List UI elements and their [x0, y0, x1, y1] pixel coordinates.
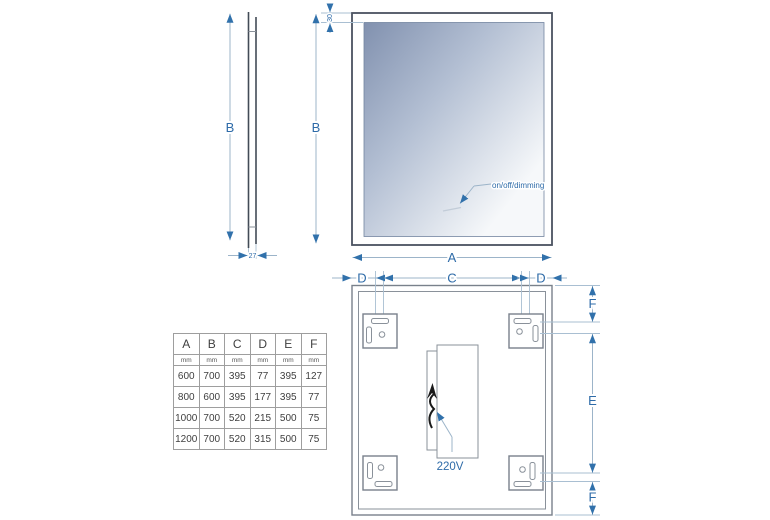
table-cell: 75: [301, 408, 327, 429]
dim-label-e: E: [588, 393, 597, 408]
dim-label-front-width: A: [448, 250, 457, 265]
table-cell: 520: [225, 429, 251, 450]
table-cell: 500: [276, 408, 302, 429]
dim-label-side-depth: 27: [249, 253, 257, 260]
table-unit-cell: mm: [301, 355, 327, 366]
table-unit-cell: mm: [250, 355, 276, 366]
table-cell: 600: [174, 366, 200, 387]
back-view: 220V D C D F E F: [332, 271, 600, 516]
table-cell: 700: [199, 366, 225, 387]
side-view: B 27: [226, 12, 277, 260]
table-cell: 127: [301, 366, 327, 387]
table-header-row: A B C D E F: [174, 334, 327, 355]
table-unit-cell: mm: [199, 355, 225, 366]
table-row: 800 600 395 177 395 77: [174, 387, 327, 408]
table-cell: 700: [199, 408, 225, 429]
table-cell: 1200: [174, 429, 200, 450]
table-unit-cell: mm: [225, 355, 251, 366]
table-cell: 500: [276, 429, 302, 450]
sensor-annotation: on/off/dimming: [492, 181, 544, 190]
dimension-table: A B C D E F mm mm mm mm mm mm 600 700 39…: [173, 333, 327, 450]
table-header-cell: D: [250, 334, 276, 355]
table-cell: 395: [225, 387, 251, 408]
dim-label-c: C: [447, 271, 456, 286]
table-cell: 77: [301, 387, 327, 408]
table-cell: 700: [199, 429, 225, 450]
table-cell: 395: [276, 366, 302, 387]
dim-label-d-right: D: [536, 271, 545, 286]
table-cell: 520: [225, 408, 251, 429]
dim-label-top-offset: 30: [327, 14, 334, 22]
dim-label-f-bottom: F: [589, 490, 597, 505]
table-cell: 315: [250, 429, 276, 450]
dim-label-front-height: B: [312, 120, 321, 135]
table-cell: 395: [225, 366, 251, 387]
table-header-cell: E: [276, 334, 302, 355]
table-units-row: mm mm mm mm mm mm: [174, 355, 327, 366]
drawing-canvas: B 27 B A 30 on/off/dimming: [0, 0, 770, 520]
dim-label-d-left: D: [357, 271, 366, 286]
table-unit-cell: mm: [276, 355, 302, 366]
table-cell: 177: [250, 387, 276, 408]
table-row: 1200 700 520 315 500 75: [174, 429, 327, 450]
table-cell: 395: [276, 387, 302, 408]
table-header-cell: B: [199, 334, 225, 355]
power-label: 220V: [437, 461, 464, 473]
table-unit-cell: mm: [174, 355, 200, 366]
dim-label-f-top: F: [589, 296, 597, 311]
table-row: 1000 700 520 215 500 75: [174, 408, 327, 429]
table-cell: 600: [199, 387, 225, 408]
table-cell: 77: [250, 366, 276, 387]
table-cell: 800: [174, 387, 200, 408]
table-cell: 1000: [174, 408, 200, 429]
table-header-cell: C: [225, 334, 251, 355]
mounting-bracket-bottom-right: [509, 456, 543, 490]
table-cell: 75: [301, 429, 327, 450]
mirror-glass: [364, 23, 544, 237]
table-cell: 215: [250, 408, 276, 429]
front-view: B A 30 on/off/dimming: [312, 4, 552, 265]
table-header-cell: A: [174, 334, 200, 355]
table-row: 600 700 395 77 395 127: [174, 366, 327, 387]
dim-label-side-height: B: [226, 120, 235, 135]
table-header-cell: F: [301, 334, 327, 355]
mirror-technical-drawing: B 27 B A 30 on/off/dimming: [0, 0, 770, 520]
mounting-bracket-top-left: [363, 314, 397, 348]
mounting-bracket-top-right: [509, 314, 543, 348]
mounting-bracket-bottom-left: [363, 456, 397, 490]
